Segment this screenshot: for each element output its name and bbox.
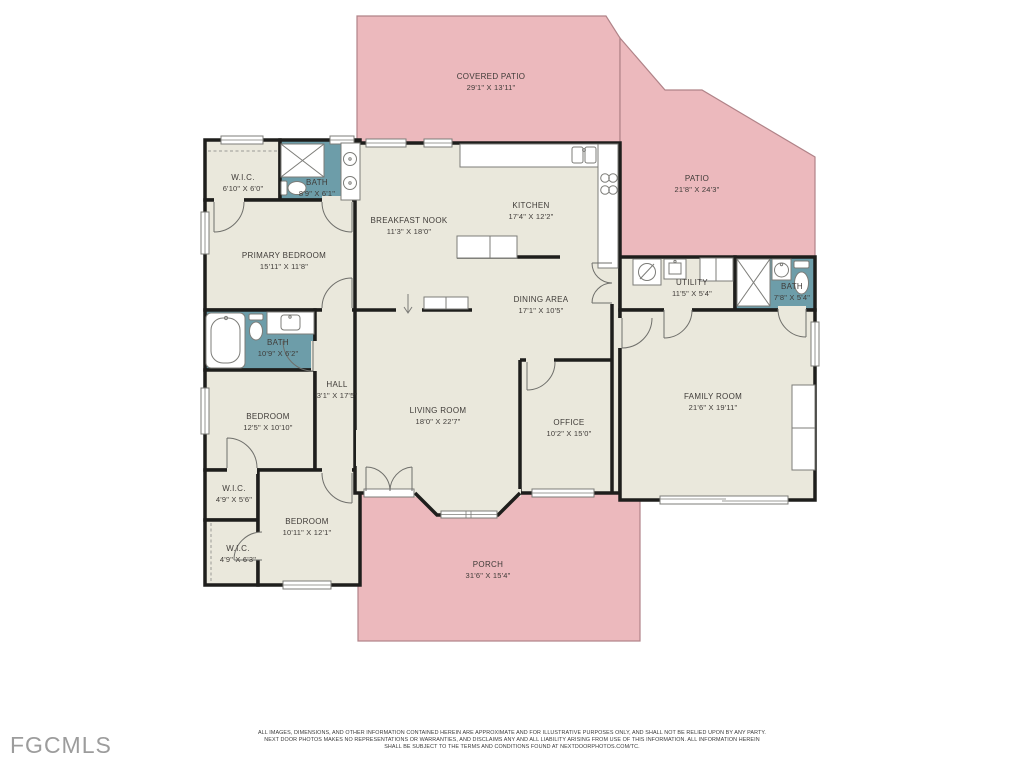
room-dims-breakfast-nook: 11'3" X 18'0" — [387, 227, 432, 236]
media-niche — [792, 385, 815, 470]
floor-plan: COVERED PATIO 29'1" X 13'11" PATIO 21'8"… — [0, 0, 1024, 768]
room-label-bath-left: BATH — [267, 338, 289, 347]
room-label-bedroom-left: BEDROOM — [246, 412, 289, 421]
room-dims-wic-top: 6'10" X 6'0" — [223, 184, 264, 193]
room-label-dining-area: DINING AREA — [514, 295, 569, 304]
room-label-primary-bedroom: PRIMARY BEDROOM — [242, 251, 326, 260]
room-dims-dining-area: 17'1" X 10'5" — [519, 306, 564, 315]
room-label-breakfast-nook: BREAKFAST NOOK — [371, 216, 448, 225]
utility-sink-icon — [664, 259, 686, 279]
shower-icon — [281, 144, 324, 177]
room-label-covered-patio: COVERED PATIO — [457, 72, 526, 81]
room-label-bath-top: BATH — [306, 178, 328, 187]
main-living-block — [355, 143, 620, 493]
room-label-bath-right: BATH — [781, 282, 803, 291]
room-dims-primary-bedroom: 15'11" X 11'8" — [260, 262, 308, 271]
room-dims-bedroom-bottom: 10'11" X 12'1" — [283, 528, 332, 537]
room-label-wic-mid: W.I.C. — [222, 484, 246, 493]
room-dims-bedroom-left: 12'5" X 10'10" — [243, 423, 292, 432]
patio-area — [620, 38, 815, 257]
room-dims-utility: 11'5" X 5'4" — [672, 289, 712, 298]
buffet-cabinet — [424, 297, 468, 309]
shower-icon — [737, 259, 770, 306]
window — [366, 139, 406, 147]
window — [201, 212, 209, 254]
room-dims-living-room: 18'0" X 22'7" — [416, 417, 461, 426]
room-dims-bath-top: 8'9" X 6'1" — [299, 189, 335, 198]
window — [811, 322, 819, 366]
french-door-threshold — [364, 489, 414, 497]
sliding-door — [660, 496, 788, 504]
room-dims-hall: 3'1" X 17'5" — [317, 391, 358, 400]
mls-logo: FGCMLS — [10, 732, 112, 758]
window — [283, 581, 331, 589]
disclaimer: ALL IMAGES, DIMENSIONS, AND OTHER INFORM… — [258, 730, 766, 750]
room-dims-porch: 31'6" X 15'4" — [466, 571, 511, 580]
double-sink-icon — [341, 143, 360, 200]
sink-icon — [267, 312, 314, 334]
room-label-bedroom-bottom: BEDROOM — [285, 517, 328, 526]
room-label-living-room: LIVING ROOM — [410, 406, 467, 415]
room-label-wic-top: W.I.C. — [231, 173, 255, 182]
room-label-hall: HALL — [326, 380, 347, 389]
floor-plan-page: COVERED PATIO 29'1" X 13'11" PATIO 21'8"… — [0, 0, 1024, 768]
room-dims-patio: 21'8" X 24'3" — [675, 185, 720, 194]
room-dims-kitchen: 17'4" X 12'2" — [509, 212, 554, 221]
toilet-icon — [249, 314, 263, 340]
disclaimer-line-3: SHALL BE SUBJECT TO THE TERMS AND CONDIT… — [384, 744, 640, 750]
window — [424, 139, 452, 147]
room-label-wic-bottom: W.I.C. — [226, 544, 250, 553]
washer-icon — [633, 259, 661, 285]
room-label-office: OFFICE — [553, 418, 584, 427]
room-label-utility: UTILITY — [676, 278, 708, 287]
room-dims-office: 10'2" X 15'0" — [547, 429, 592, 438]
bathtub-icon — [206, 313, 245, 368]
room-label-family-room: FAMILY ROOM — [684, 392, 742, 401]
room-label-kitchen: KITCHEN — [512, 201, 549, 210]
room-dims-bath-right: 7'8" X 5'4" — [774, 293, 810, 302]
window — [221, 136, 263, 144]
kitchen-island — [457, 236, 517, 258]
room-dims-family-room: 21'6" X 19'11" — [689, 403, 738, 412]
window — [532, 489, 594, 497]
sink-icon — [772, 259, 791, 280]
disclaimer-line-2: NEXT DOOR PHOTOS MAKES NO REPRESENTATION… — [264, 737, 759, 743]
room-dims-bath-left: 10'9" X 6'2" — [258, 349, 299, 358]
room-dims-wic-mid: 4'9" X 5'6" — [216, 495, 252, 504]
room-label-porch: PORCH — [473, 560, 503, 569]
room-label-patio: PATIO — [685, 174, 709, 183]
room-dims-wic-bottom: 4'9" X 6'3" — [220, 555, 256, 564]
disclaimer-line-1: ALL IMAGES, DIMENSIONS, AND OTHER INFORM… — [258, 730, 766, 736]
window — [201, 388, 209, 434]
room-dims-covered-patio: 29'1" X 13'11" — [467, 83, 516, 92]
kitchen-counter — [598, 144, 618, 268]
